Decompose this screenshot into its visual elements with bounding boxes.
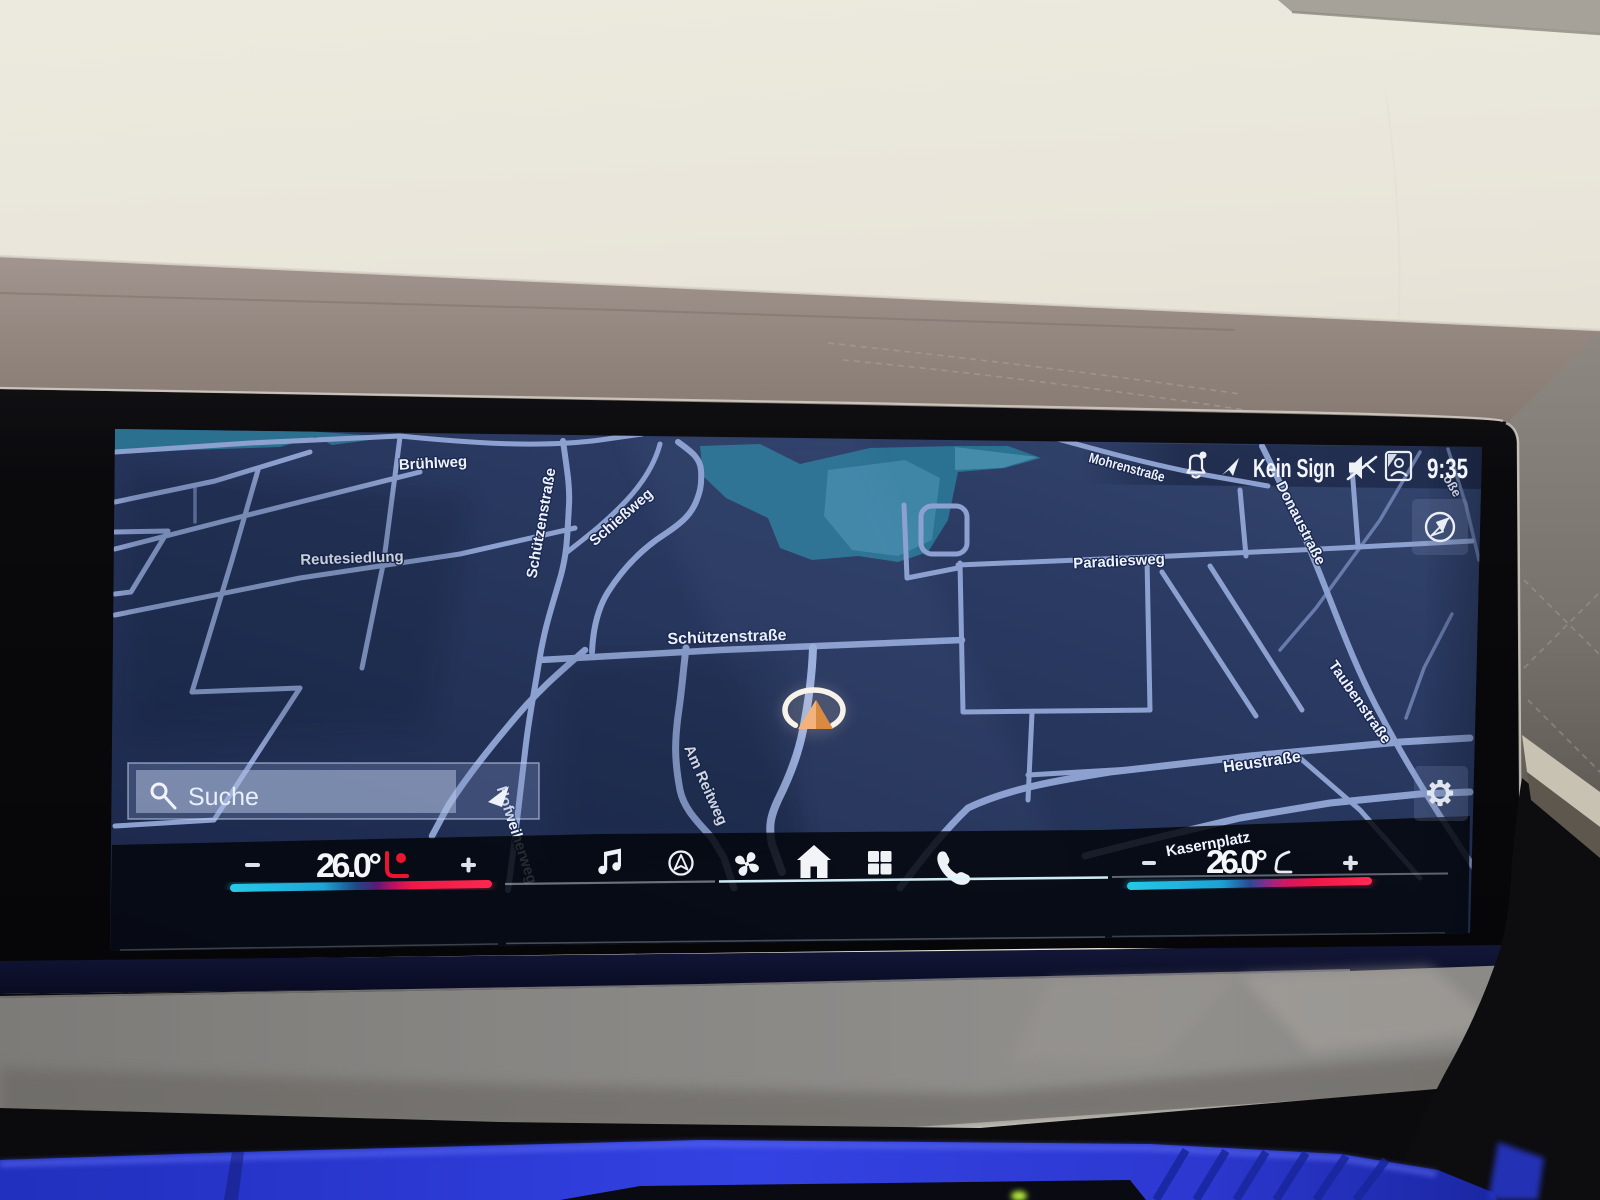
svg-text:Suche: Suche	[188, 783, 259, 811]
svg-text:26.0°: 26.0°	[1206, 843, 1268, 880]
svg-text:Brühlweg: Brühlweg	[398, 453, 467, 474]
svg-text:9:35: 9:35	[1427, 453, 1468, 484]
svg-text:Kein Sign: Kein Sign	[1253, 453, 1335, 483]
svg-text:26.0°: 26.0°	[316, 847, 382, 885]
